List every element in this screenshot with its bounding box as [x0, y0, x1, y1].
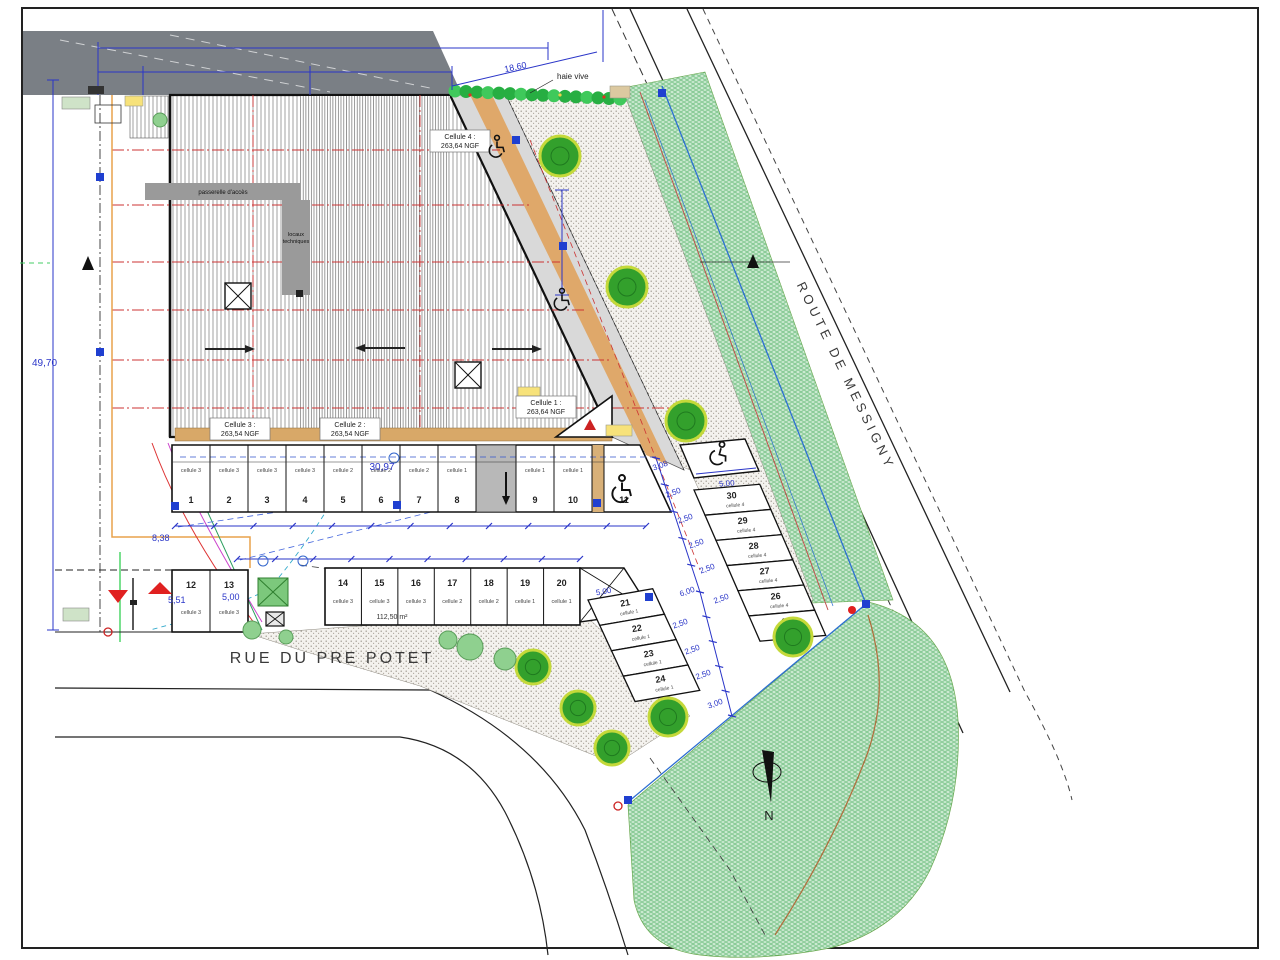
tree: [666, 401, 706, 441]
north-letter: N: [764, 808, 773, 823]
stall-cell: cellule 3: [181, 468, 201, 474]
tree: [540, 136, 580, 176]
level-tag-yellow: [518, 387, 540, 397]
marker-square: [393, 501, 401, 509]
stall-number: 12: [186, 580, 196, 590]
stall-cell: cellule 2: [479, 599, 499, 605]
stall-number: 20: [557, 578, 567, 588]
marker-square: [559, 242, 567, 250]
level-tag-beige: [610, 86, 630, 98]
stall-number: 2: [226, 495, 231, 505]
stall-number: 27: [759, 566, 770, 577]
street-name-bottom: RUE DU PRE POTET: [230, 650, 434, 667]
plan-sheet: 1cellule 32cellule 33cellule 34cellule 3…: [0, 0, 1280, 960]
stall-cell: cellule 3: [219, 468, 239, 474]
marker-square: [658, 89, 666, 97]
stall-number: 19: [520, 578, 530, 588]
stall-number: 15: [374, 578, 384, 588]
gate-post: [130, 600, 137, 605]
stall-cell: cellule 1: [447, 468, 467, 474]
bin-store: [476, 445, 516, 512]
tree: [516, 650, 550, 684]
level-tag: [63, 608, 89, 621]
stall-cell: cellule 3: [257, 468, 277, 474]
stall-cell: cellule 3: [369, 599, 389, 605]
tree: [649, 698, 687, 736]
stall-cell: cellule 1: [525, 468, 545, 474]
tech-label-2: techniques: [283, 239, 310, 245]
stall-number: 5: [340, 495, 345, 505]
cell1-name: Cellule 1 :: [530, 400, 561, 407]
level-tag: [62, 97, 90, 109]
tree: [595, 731, 629, 765]
stall-number: 17: [447, 578, 457, 588]
parking-row-mid: [325, 568, 580, 625]
bush: [153, 113, 167, 127]
stall-number: 7: [416, 495, 421, 505]
stall-number: 24: [655, 673, 667, 685]
stall-cell: cellule 1: [551, 599, 571, 605]
marker-square: [512, 136, 520, 144]
stall-number: 9: [532, 495, 537, 505]
stall-number: 3: [264, 495, 269, 505]
stall-cell: cellule 3: [219, 610, 239, 616]
area-label: 112,50 m²: [377, 614, 409, 621]
stall-number: 21: [619, 597, 631, 609]
site-plan-svg: 1cellule 32cellule 33cellule 34cellule 3…: [0, 0, 1280, 960]
tech-label-1: locaux: [288, 232, 304, 238]
bush: [279, 630, 293, 644]
stall-cell: cellule 1: [515, 599, 535, 605]
dim-depth-b: 5,00: [222, 592, 240, 602]
stall-number: 26: [770, 591, 781, 602]
marker-square: [624, 796, 632, 804]
neighbor-building: [23, 31, 462, 95]
stall-cell: cellule 3: [181, 610, 201, 616]
stall-cell: cellule 2: [442, 599, 462, 605]
cell3-name: Cellule 3 :: [224, 422, 255, 429]
stall-cell: cellule 2: [333, 468, 353, 474]
marker-square: [96, 173, 104, 181]
stall-number: 13: [224, 580, 234, 590]
stall-number: 28: [748, 540, 759, 551]
marker-square: [593, 499, 601, 507]
marker-square: [171, 502, 179, 510]
marker-square: [96, 348, 104, 356]
survey-point-red: [848, 606, 856, 614]
bush: [457, 634, 483, 660]
cell4-level: 263,64 NGF: [441, 143, 479, 150]
tech-detail: [296, 290, 303, 297]
tree: [561, 691, 595, 725]
marker-square: [645, 593, 653, 601]
stall-number: 18: [484, 578, 494, 588]
cell2-name: Cellule 2 :: [334, 422, 365, 429]
tech-room: [282, 200, 310, 295]
tree: [607, 267, 647, 307]
stall-number: 4: [302, 495, 307, 505]
bush: [243, 621, 261, 639]
cell4-name: Cellule 4 :: [444, 134, 475, 141]
cell3-level: 263,54 NGF: [221, 431, 259, 438]
dim-stalls-width: 30,97: [369, 462, 394, 473]
stall-number: 1: [188, 495, 193, 505]
stall-number: 14: [338, 578, 348, 588]
dim-left-height: 49,70: [32, 358, 57, 369]
dim-depth-a: 5,51: [168, 595, 186, 605]
stall-number: 10: [568, 495, 578, 505]
stall-number: 30: [726, 490, 737, 501]
level-tag-yellow: [125, 96, 143, 106]
stall-cell: cellule 1: [563, 468, 583, 474]
marker-square: [862, 600, 870, 608]
stall-number: 23: [643, 648, 655, 660]
stall-number: 8: [454, 495, 459, 505]
stall-number: 6: [378, 495, 383, 505]
stall-cell: cellule 3: [295, 468, 315, 474]
tree: [774, 618, 812, 656]
cell1-level: 263,64 NGF: [527, 409, 565, 416]
cell2-level: 263,54 NGF: [331, 431, 369, 438]
dim-offset: 8,38: [152, 533, 170, 543]
hedge-label: haie vive: [557, 72, 589, 81]
entry-detail: [88, 86, 104, 94]
stall-number: 16: [411, 578, 421, 588]
bush: [439, 631, 457, 649]
level-tag-yellow: [606, 425, 632, 436]
stall-number: 22: [631, 622, 643, 634]
corridor-label: passerelle d'accès: [198, 190, 247, 196]
stall-cell: cellule 3: [406, 599, 426, 605]
building-mid-bay: [300, 96, 450, 436]
stall-cell: cellule 3: [333, 599, 353, 605]
stall-cell: cellule 2: [409, 468, 429, 474]
bush: [494, 648, 516, 670]
stall-number: 29: [737, 515, 748, 526]
